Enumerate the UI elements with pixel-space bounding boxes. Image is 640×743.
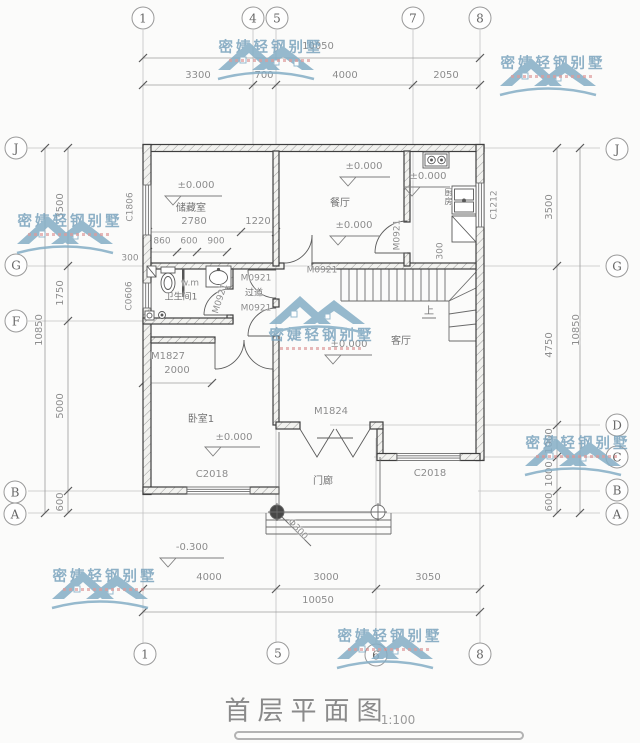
level-dining-upper: ±0.000 <box>345 162 382 172</box>
window-c1806 <box>143 185 151 235</box>
level-markers <box>160 177 450 567</box>
watermark-subtext <box>280 347 364 350</box>
floor-plan-sheet: 1 4 5 7 8 1 5 6 8 J G F B A J G D C B A … <box>0 0 640 743</box>
dim-entry-gap: 1220 <box>245 217 270 227</box>
dim-left-seg-3: 5000 <box>56 393 66 418</box>
room-label-corridor: 过道 <box>245 290 263 299</box>
door-label-m0921-storage: M0921 <box>307 267 338 276</box>
door-bedroom-m1827 <box>215 340 273 369</box>
watermark-subtext <box>536 455 620 458</box>
title-underline-bar <box>234 731 524 740</box>
watermark-top-center: 密婕轻钢别墅 <box>216 36 326 62</box>
window-label-c0606: C0606 <box>126 281 135 310</box>
watermark-roof-icon <box>267 290 367 336</box>
dim-bottom-total: 10050 <box>302 596 334 606</box>
dim-bath-seg-1: 860 <box>153 238 170 247</box>
stairs-up-label: 上 <box>424 307 434 317</box>
plan-drawing <box>0 0 640 743</box>
dim-top-seg-3: 4000 <box>332 71 357 81</box>
dim-bottom-seg-2: 3000 <box>313 573 338 583</box>
dim-left-seg-2: 1750 <box>56 280 66 305</box>
watermark-subtext <box>229 59 313 62</box>
dim-bottom-seg-3: 3050 <box>415 573 440 583</box>
room-label-bathroom: 卫生间1 <box>165 294 198 303</box>
axis-bubble-left-a: A <box>4 503 27 526</box>
room-label-kitchen: 厨房 <box>444 188 452 206</box>
axis-bubble-top-7: 7 <box>402 7 425 30</box>
watermark-subtext <box>511 75 595 78</box>
level-outdoor: -0.300 <box>176 543 208 553</box>
watermark-mid-left: 密婕轻钢别墅 <box>15 210 125 236</box>
room-label-bedroom: 卧室1 <box>188 415 214 425</box>
toilet-tank-icon <box>161 267 175 273</box>
room-label-storage: 储藏室 <box>176 204 206 214</box>
watermark-subtext <box>63 588 147 591</box>
door-label-m0921-corridor-top: M0921 <box>241 275 272 284</box>
dim-bottom-seg-1: 4000 <box>196 573 221 583</box>
axis-bubble-right-a: A <box>606 503 629 526</box>
axis-bubble-right-j: J <box>606 138 629 161</box>
room-label-dining: 餐厅 <box>330 199 350 209</box>
dim-bath-seg-3: 900 <box>207 238 224 247</box>
level-storage: ±0.000 <box>177 181 214 191</box>
watermark-bottom-center: 密婕轻钢别墅 <box>335 625 445 651</box>
dim-bedroom-wall: 2000 <box>164 366 189 376</box>
washer-label: w.m <box>181 280 199 289</box>
watermark-subtext <box>28 233 112 236</box>
door-label-m0921-kitchen: M0921 <box>394 220 403 251</box>
window-label-c2018-bedroom: C2018 <box>196 470 228 480</box>
dim-right-seg-1: 3500 <box>545 194 555 219</box>
door-storage-m0921 <box>284 235 312 263</box>
drawing-scale: 1:100 <box>381 713 416 727</box>
dim-top-seg-1: 3300 <box>185 71 210 81</box>
dim-right-total: 10850 <box>572 314 582 346</box>
dim-offset-kitchen: 300 <box>437 242 446 259</box>
dim-left-total: 10850 <box>35 314 45 346</box>
level-kitchen: ±0.000 <box>409 172 446 182</box>
level-bedroom: ±0.000 <box>215 433 252 443</box>
watermark-center: 密婕轻钢别墅 <box>267 290 377 350</box>
window-label-c1806: C1806 <box>127 192 136 221</box>
dim-offset-left: 300 <box>121 255 138 264</box>
door-label-m1827: M1827 <box>151 352 185 362</box>
axis-bubble-bottom-1: 1 <box>134 643 157 666</box>
axis-bubble-top-4: 4 <box>242 7 265 30</box>
drawing-title: 首层平面图 <box>224 691 389 728</box>
axis-bubble-left-f: F <box>5 310 28 333</box>
room-label-porch: 门廊 <box>313 477 333 487</box>
porch <box>266 432 391 546</box>
dim-bath-seg-2: 600 <box>180 238 197 247</box>
watermark-bottom-left: 密婕轻钢别墅 <box>50 565 160 591</box>
axis-bubble-left-g: G <box>5 254 28 277</box>
watermark-right-lower: 密婕轻钢别墅 <box>523 432 633 458</box>
watermark-subtext <box>348 648 432 651</box>
dim-right-seg-2: 4750 <box>545 332 555 357</box>
dim-left-seg-4: 600 <box>56 492 66 511</box>
window-c1212 <box>476 183 484 227</box>
axis-bubble-left-j: J <box>5 137 28 160</box>
axis-bubble-left-b: B <box>4 481 27 504</box>
window-c2018-living <box>397 454 460 461</box>
window-label-c1212: C1212 <box>491 190 500 219</box>
window-c0606 <box>143 283 151 308</box>
axis-bubble-bottom-5: 5 <box>267 642 290 665</box>
door-entry-m1824 <box>300 429 370 457</box>
watermark-top-right: 密婕轻钢别墅 <box>498 52 608 78</box>
window-c2018-bedroom <box>187 487 250 494</box>
dim-top-seg-4: 2050 <box>433 71 458 81</box>
axis-bubble-top-5: 5 <box>266 7 289 30</box>
axis-bubble-right-b: B <box>606 479 629 502</box>
axis-bubble-top-8: 8 <box>469 7 492 30</box>
axis-bubble-right-g: G <box>606 255 629 278</box>
dim-right-seg-5: 600 <box>545 492 555 511</box>
level-dining-lower: ±0.000 <box>335 221 372 231</box>
axis-bubble-top-1: 1 <box>132 7 155 30</box>
door-label-m1824: M1824 <box>314 407 348 417</box>
window-label-c2018-living: C2018 <box>414 469 446 479</box>
dim-storage-width: 2780 <box>181 217 206 227</box>
axis-bubble-bottom-8: 8 <box>469 643 492 666</box>
room-label-living: 客厅 <box>391 337 411 347</box>
